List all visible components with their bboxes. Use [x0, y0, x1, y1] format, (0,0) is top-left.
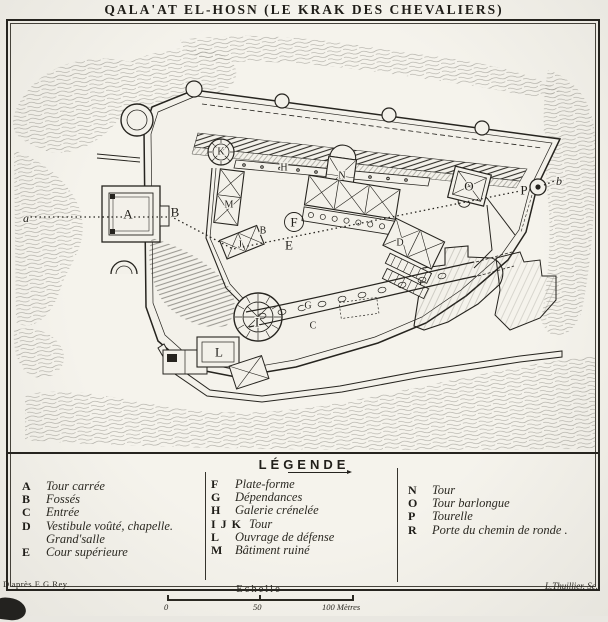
legend-column-3: NTourOTour barlonguePTourelleRPorte du c… [408, 484, 588, 537]
map-label-J: J [238, 240, 242, 251]
scale-num-50: 50 [253, 602, 262, 612]
legend-column-2: FPlate-formeGDépendancesHGalerie crénelé… [211, 478, 393, 557]
legend-key: M [211, 544, 228, 557]
legend-key: H [211, 504, 228, 517]
legend-entry: CEntrée [22, 506, 200, 519]
castle-plan-map: aABKMBJEFHNGCILDOPb [10, 24, 598, 452]
scale-num-0: 0 [164, 602, 168, 612]
map-label-K: K [217, 147, 225, 158]
map-label-M: M [225, 200, 234, 211]
map-label-L: L [215, 345, 223, 360]
map-label-b: b [556, 174, 562, 188]
map-label-A: A [123, 207, 133, 222]
legend-label: Vestibule voûté, chapelle. Grand'salle [46, 520, 196, 546]
map-label-B: B [171, 205, 180, 220]
legend-label: Tourelle [432, 510, 473, 523]
legend-entry: ECour supérieure [22, 546, 200, 559]
legend-divider-2 [397, 468, 398, 582]
legend-key: D [22, 520, 39, 533]
map-label-H: H [280, 163, 287, 174]
legend-entry: DVestibule voûté, chapelle. Grand'salle [22, 520, 200, 546]
legend-label: Cour supérieure [46, 546, 128, 559]
scale-tick-0 [167, 595, 169, 601]
legend-key: C [22, 506, 39, 519]
map-label-B: B [260, 226, 267, 237]
map-label-a: a [23, 211, 29, 225]
legend-key: P [408, 510, 425, 523]
map-label-E: E [285, 238, 293, 253]
legend-divider-1 [205, 472, 206, 580]
scale-num-100: 100 Mètres [322, 602, 360, 612]
legend-key: E [22, 546, 39, 559]
legend-flourish [288, 472, 350, 473]
scale-tick-100 [352, 595, 354, 601]
map-label-N: N [338, 171, 345, 182]
legend-label: Bâtiment ruiné [235, 544, 310, 557]
credit-left: D'après E.G.Rey. [3, 579, 70, 589]
map-label-D: D [396, 238, 403, 249]
legend-entry: RPorte du chemin de ronde . [408, 524, 588, 537]
legend-entry: PTourelle [408, 510, 588, 523]
map-label-I: I [255, 315, 259, 330]
legend-key: I J K [211, 518, 242, 531]
legend-entry: MBâtiment ruiné [211, 544, 393, 557]
map-label-G: G [304, 301, 311, 312]
scale-tick-50 [259, 595, 261, 601]
credit-right: L.Thuillier. Sc. [545, 581, 598, 591]
legend: LÉGENDE ATour carréeBFossésCEntréeDVesti… [8, 454, 600, 589]
legend-label: Tour [249, 518, 272, 531]
legend-label: Porte du chemin de ronde . [432, 524, 568, 537]
legend-title: LÉGENDE [8, 457, 600, 472]
map-label-P: P [520, 183, 527, 198]
outer-enceinte [111, 81, 560, 377]
page-title: QALA'AT EL-HOSN (LE KRAK DES CHEVALIERS) [0, 2, 608, 18]
legend-label: Galerie crénelée [235, 504, 319, 517]
map-label-C: C [310, 321, 317, 332]
map-label-F: F [290, 215, 297, 230]
map-label-O: O [464, 179, 473, 194]
legend-key: R [408, 524, 425, 537]
legend-entry: HGalerie crénelée [211, 504, 393, 517]
legend-entry: I J KTour [211, 518, 393, 531]
legend-column-1: ATour carréeBFossésCEntréeDVestibule voû… [22, 480, 200, 559]
scale-label: Echelle [194, 584, 324, 595]
legend-label: Entrée [46, 506, 79, 519]
